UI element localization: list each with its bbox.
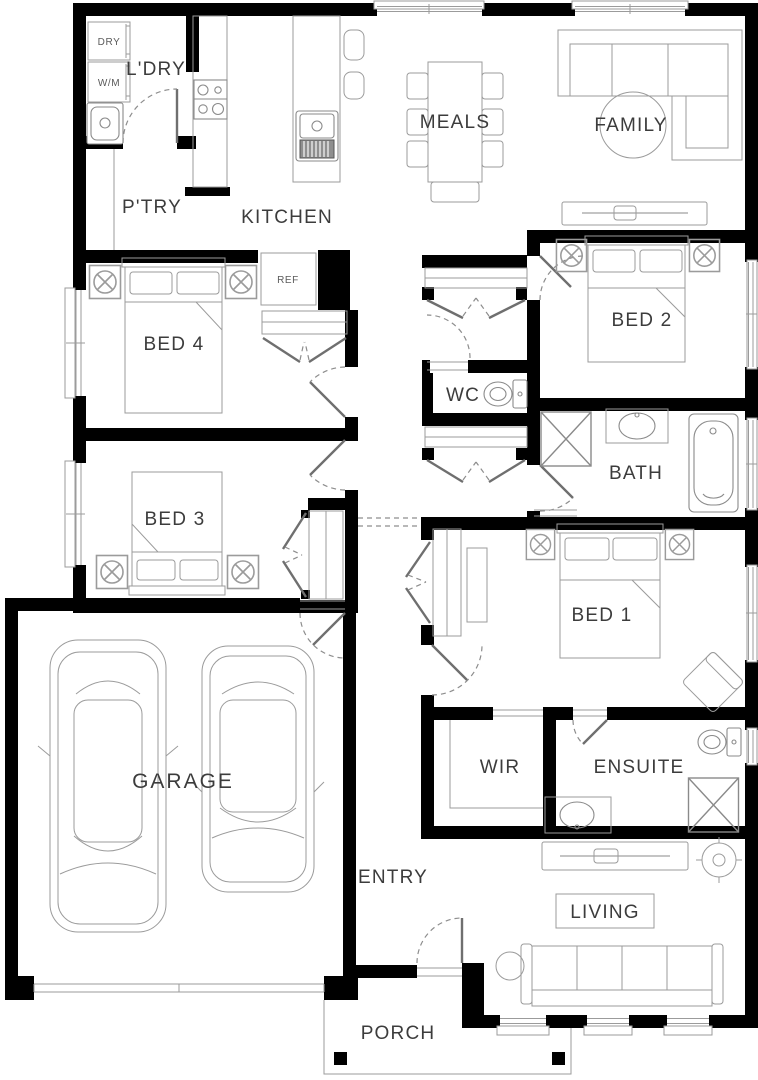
room-label-laundry: L'DRY bbox=[126, 59, 186, 80]
window-bed2-right bbox=[746, 260, 757, 369]
toilet-ensuite bbox=[698, 728, 741, 756]
porch-post bbox=[552, 1052, 565, 1065]
room-label-pantry: P'TRY bbox=[122, 197, 182, 218]
door-wc bbox=[427, 315, 470, 370]
room-label-porch: PORCH bbox=[361, 1023, 436, 1044]
room-label-family: FAMILY bbox=[594, 115, 667, 136]
door-ensuite bbox=[573, 710, 607, 744]
room-label-bed2: BED 2 bbox=[612, 310, 673, 331]
side-table bbox=[496, 952, 524, 980]
bedside-light-icon bbox=[90, 266, 121, 299]
laundry-trough bbox=[87, 103, 123, 144]
car-right bbox=[192, 646, 324, 892]
kitchen-sink bbox=[296, 111, 338, 161]
porch-post bbox=[334, 1052, 347, 1065]
dining-chair bbox=[407, 141, 428, 167]
ensuite-fixtures bbox=[545, 728, 741, 833]
window-living-2 bbox=[584, 1019, 632, 1036]
dining-chair bbox=[482, 73, 503, 99]
shower-ensuite bbox=[689, 778, 739, 832]
tallboy bbox=[467, 548, 487, 622]
window-bath-right bbox=[746, 418, 757, 510]
room-label-bed3: BED 3 bbox=[145, 509, 206, 530]
door-bed3 bbox=[310, 440, 345, 490]
appliance-label-washer: W/M bbox=[98, 78, 120, 89]
cooktop-icon bbox=[194, 80, 227, 119]
bed3-robe bbox=[283, 511, 343, 599]
bed4-robe bbox=[262, 311, 347, 362]
hall-bulkhead-dashed bbox=[358, 518, 421, 526]
opening-wir-sill bbox=[493, 710, 543, 716]
bedside-light-icon bbox=[526, 529, 554, 559]
window-living-3 bbox=[664, 1019, 712, 1036]
vanity-bath bbox=[606, 409, 668, 443]
sofa-living bbox=[521, 944, 723, 1006]
room-label-kitchen: KITCHEN bbox=[241, 207, 333, 228]
door-bed1 bbox=[432, 645, 482, 695]
appliance-label-dryer: DRY bbox=[98, 37, 121, 48]
floor-plan-drawing: L'DRY P'TRY KITCHEN MEALS FAMILY BED 4 B… bbox=[0, 0, 758, 1080]
bedside-light-icon bbox=[226, 266, 257, 299]
room-label-bed1: BED 1 bbox=[572, 605, 633, 626]
floor-plan: L'DRY P'TRY KITCHEN MEALS FAMILY BED 4 B… bbox=[0, 0, 758, 1080]
garage-door bbox=[34, 984, 324, 992]
garage-cars bbox=[34, 640, 324, 992]
bed1-bed bbox=[557, 524, 663, 658]
armchair-bed1 bbox=[682, 651, 744, 713]
room-label-living: LIVING bbox=[570, 902, 640, 923]
window-living-1 bbox=[497, 1019, 549, 1036]
room-label-bed4: BED 4 bbox=[144, 334, 205, 355]
doors bbox=[123, 89, 607, 976]
bedroom2-furniture bbox=[556, 236, 719, 362]
bed2-bed bbox=[585, 236, 688, 362]
linen-closet-hall bbox=[406, 529, 461, 636]
sofa-family bbox=[558, 30, 742, 160]
bedroom4-furniture bbox=[90, 258, 348, 413]
bedside-light-icon bbox=[228, 556, 259, 589]
bed3-bed bbox=[129, 472, 225, 595]
room-label-wc: WC bbox=[446, 385, 480, 406]
window-bed3-left bbox=[65, 461, 85, 567]
window-meals-top bbox=[374, 1, 484, 14]
toilet-wc bbox=[484, 380, 527, 408]
room-label-entry: ENTRY bbox=[358, 867, 428, 888]
room-label-wir: WIR bbox=[480, 757, 521, 778]
dining-chair bbox=[431, 182, 479, 202]
wc-fixtures bbox=[425, 268, 527, 482]
bedside-light-icon bbox=[665, 529, 693, 559]
tv-unit-living bbox=[542, 842, 688, 870]
linen-cupboard-1 bbox=[425, 268, 527, 318]
door-front-entry bbox=[417, 918, 462, 976]
window-ensuite-right bbox=[747, 728, 757, 765]
room-label-garage: GARAGE bbox=[132, 770, 234, 793]
dining-chair bbox=[407, 73, 428, 99]
shower-bath bbox=[541, 412, 591, 466]
door-bath bbox=[534, 465, 577, 516]
ceiling-fan-icon bbox=[696, 837, 742, 883]
bedside-light-icon bbox=[97, 556, 128, 589]
appliance-label-fridge: REF bbox=[277, 275, 299, 286]
door-bed2 bbox=[540, 256, 584, 300]
room-label-ensuite: ENSUITE bbox=[594, 757, 685, 778]
bedroom3-furniture bbox=[97, 472, 344, 599]
window-bed4-left bbox=[65, 288, 85, 398]
window-family-top bbox=[572, 1, 688, 14]
bedside-light-icon bbox=[556, 239, 586, 271]
room-label-meals: MEALS bbox=[420, 112, 490, 133]
stool bbox=[344, 72, 364, 99]
bathtub bbox=[689, 414, 738, 512]
bedside-light-icon bbox=[689, 239, 719, 271]
door-bed4 bbox=[310, 367, 345, 417]
window-bed1-right bbox=[746, 565, 757, 662]
stool bbox=[344, 30, 364, 60]
tv-unit-family bbox=[562, 202, 707, 225]
room-label-bath: BATH bbox=[609, 463, 663, 484]
dining-chair bbox=[482, 141, 503, 167]
linen-cupboard-2 bbox=[425, 427, 527, 482]
door-laundry bbox=[123, 89, 177, 143]
